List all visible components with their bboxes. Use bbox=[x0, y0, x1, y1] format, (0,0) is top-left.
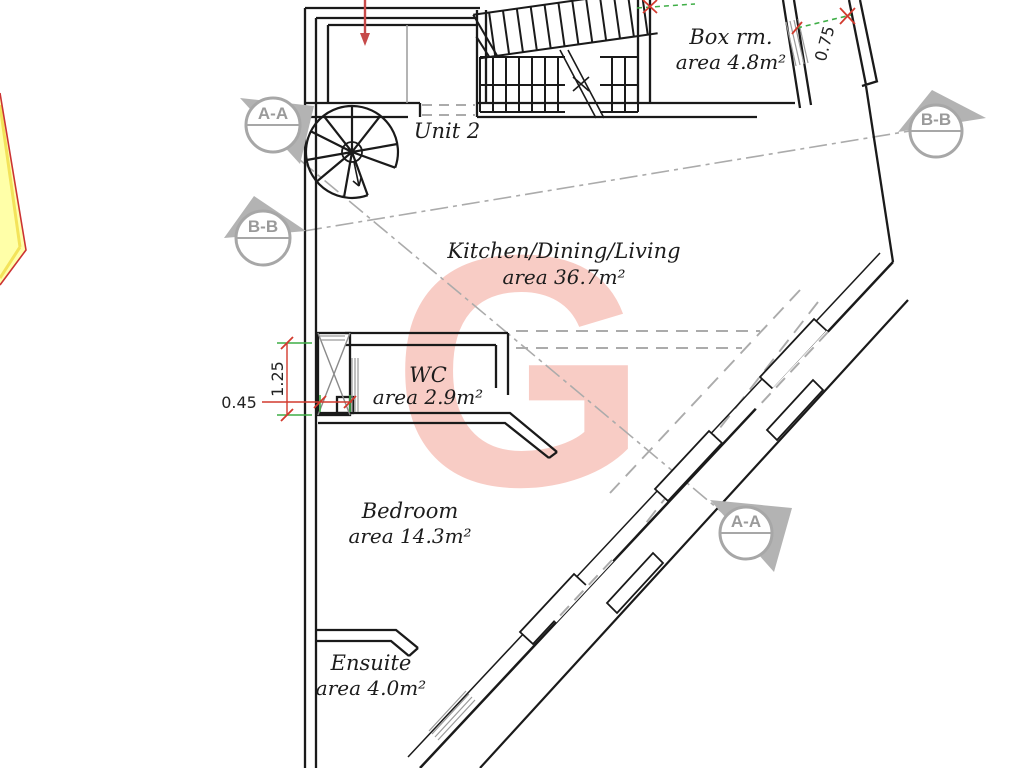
section-marker-a-top-left: A-A bbox=[240, 98, 314, 164]
label-wc-area: area 2.9m² bbox=[373, 385, 483, 409]
wall-corner-east bbox=[849, 0, 878, 86]
svg-text:A-A: A-A bbox=[258, 104, 288, 123]
window-frame-1 bbox=[760, 319, 827, 389]
main-staircase bbox=[473, 0, 657, 118]
top-dimension-mark bbox=[637, 0, 695, 13]
label-wc-name: WC bbox=[409, 363, 447, 387]
wall-stair-core bbox=[638, 0, 650, 103]
label-unit: Unit 2 bbox=[414, 119, 480, 143]
svg-text:B-B: B-B bbox=[921, 110, 951, 129]
dimension-label-0-75: 0.75 bbox=[811, 24, 839, 63]
label-kitchen-name: Kitchen/Dining/Living bbox=[446, 239, 680, 263]
dimension-label-0-45: 0.45 bbox=[221, 393, 257, 412]
unit-entrance-opening bbox=[422, 105, 475, 115]
label-ensuite-name: Ensuite bbox=[330, 651, 412, 675]
dimension-label-1-25: 1.25 bbox=[268, 361, 287, 397]
floor-plan-canvas: G bbox=[0, 0, 1024, 768]
wall-lobby-right bbox=[477, 103, 795, 117]
dimension-0-45: 0.45 bbox=[221, 393, 356, 412]
label-kitchen-area: area 36.7m² bbox=[502, 265, 625, 289]
label-box-room-area: area 4.8m² bbox=[676, 50, 786, 74]
wall-east-edge bbox=[866, 86, 893, 262]
label-bedroom-area: area 14.3m² bbox=[348, 524, 471, 548]
wc-top-vent-hatch bbox=[320, 336, 345, 340]
section-marker-a-bottom: A-A bbox=[710, 500, 792, 572]
wall-top bbox=[305, 8, 480, 18]
label-bedroom-name: Bedroom bbox=[361, 499, 459, 523]
svg-text:B-B: B-B bbox=[248, 217, 278, 236]
section-marker-b-right: B-B bbox=[898, 90, 986, 157]
wall-lobby-left bbox=[305, 103, 420, 117]
spiral-staircase bbox=[306, 106, 398, 198]
window-frame-5 bbox=[607, 553, 663, 613]
shaft-cross-brace bbox=[318, 333, 350, 415]
drawing-viewport: G bbox=[0, 0, 1024, 768]
window-frame-3 bbox=[520, 574, 587, 644]
window-frame-2 bbox=[655, 431, 722, 501]
left-highlight-shape bbox=[0, 93, 26, 285]
section-marker-b-left: B-B bbox=[224, 196, 306, 265]
label-box-room-name: Box rm. bbox=[688, 25, 772, 49]
svg-text:A-A: A-A bbox=[731, 512, 761, 531]
label-ensuite-area: area 4.0m² bbox=[316, 676, 426, 700]
